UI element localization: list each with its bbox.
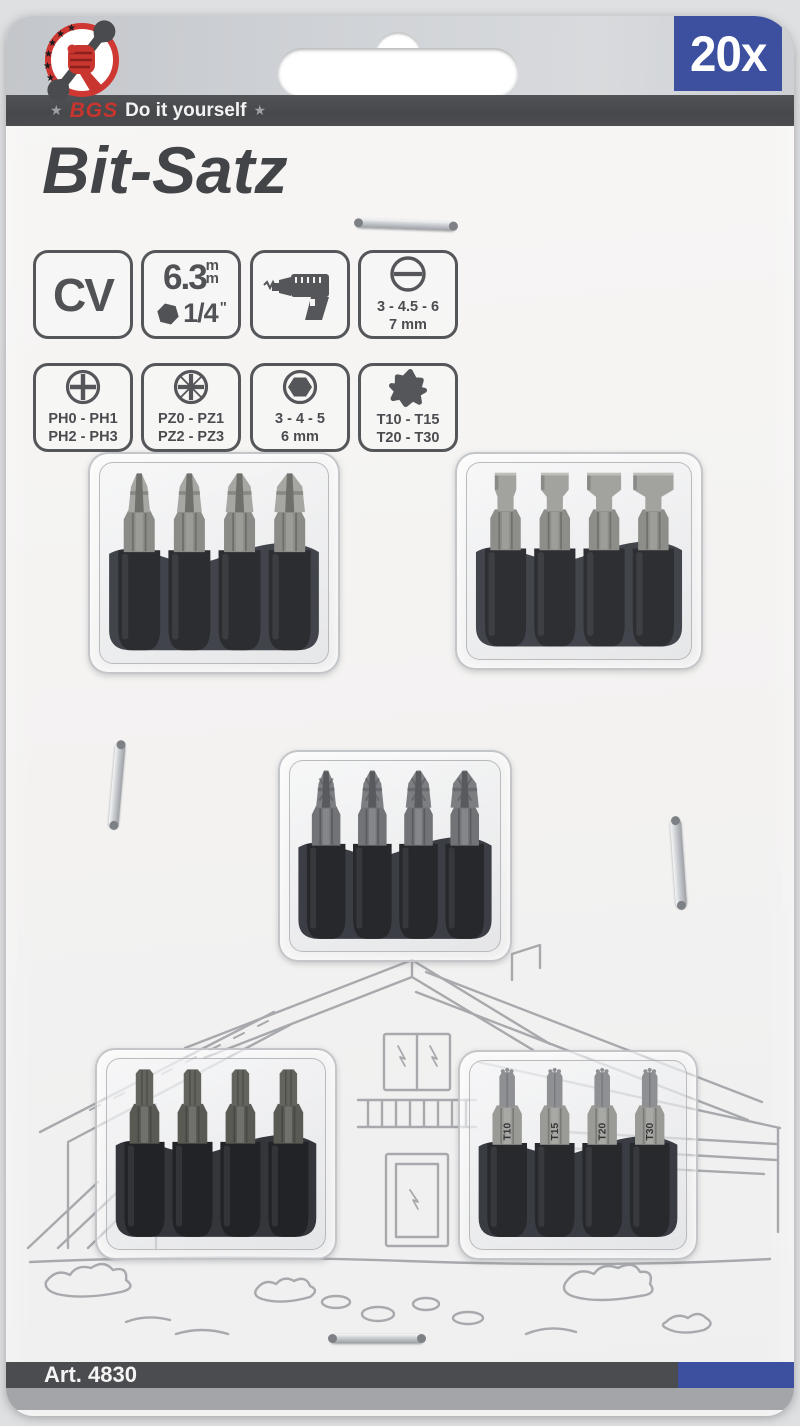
blister-tray [466,462,692,660]
spec-phillips-box: PH0 - PH1 PH2 - PH3 [33,363,133,452]
blister-card: 20x ★ BGS Do it yourself ★ ★★★ ★★★★ [6,16,794,1416]
torx-bit-icon [387,368,429,408]
svg-text:T30: T30 [645,1123,656,1141]
mm-unit: m [206,273,219,286]
hang-slot [278,48,518,96]
drill-icon [263,268,337,322]
slotted-sizes-1: 3 - 4.5 - 6 [377,299,439,316]
torx-sizes-2: T20 - T30 [377,430,440,447]
footer-blue-segment [678,1362,794,1388]
hex-bit-icon [278,369,322,407]
blister-hex [95,1048,337,1260]
spec-pozidriv-box: PZ0 - PZ1 PZ2 - PZ3 [141,363,241,452]
svg-text:★: ★ [43,61,52,72]
blister-torx: T10T15T20T30 [458,1050,698,1260]
spec-cv-box: CV [33,250,133,339]
torx-sizes-1: T10 - T15 [377,412,440,429]
hex-sizes-1: 3 - 4 - 5 [275,411,325,428]
phillips-sizes-1: PH0 - PH1 [48,411,117,428]
article-number: Art. 4830 [44,1362,137,1388]
count-badge: 20x [674,16,782,91]
pozidriv-bit-icon [170,369,212,407]
svg-text:T10: T10 [503,1123,514,1141]
blister-tray: T10T15T20T30 [469,1060,687,1250]
slotted-sizes-2: 7 mm [377,317,439,334]
staple-left [108,742,125,829]
svg-text:★: ★ [56,29,65,40]
cv-label: CV [53,268,113,322]
product-title: Bit-Satz [42,132,288,208]
count-badge-label: 20x [690,25,766,83]
star-icon: ★ [253,102,266,119]
blister-tray [106,1058,326,1250]
blister-tray [289,760,501,952]
drive-size-mm: 6.3 [163,260,206,295]
spec-hex-box: 3 - 4 - 5 6 mm [250,363,350,452]
hex-sizes-2: 6 mm [275,429,325,446]
spec-machine-use-box [250,250,350,339]
hang-slot-pill [278,48,518,96]
staple-bottom [330,1334,424,1343]
staple-right [670,818,687,909]
svg-text:T20: T20 [598,1123,609,1141]
blister-pozidriv [278,750,512,962]
spec-drive-size-box: 6.3 mm 1/4 " [141,250,241,339]
blister-slotted [455,452,703,670]
torx-bits-image: T10T15T20T30 [470,1061,686,1249]
drive-size-inch: 1/4 [183,298,218,329]
staple-top [356,218,456,230]
svg-text:T15: T15 [550,1123,561,1141]
spec-torx-box: T10 - T15 T20 - T30 [358,363,458,452]
blister-tray [99,462,329,664]
phillips-bit-icon [62,369,104,407]
slotted-bits-image [467,463,691,659]
svg-text:★: ★ [67,23,76,34]
svg-text:★: ★ [44,49,53,60]
pozidriv-bits-image [290,761,500,951]
packaging-photo: 20x ★ BGS Do it yourself ★ ★★★ ★★★★ [0,0,800,1426]
brand-tagline: Do it yourself [125,100,246,122]
phillips-bits-image [100,463,328,663]
blister-phillips [88,452,340,674]
inch-mark: " [220,299,227,316]
pozidriv-sizes-1: PZ0 - PZ1 [158,411,224,428]
spec-slotted-box: 3 - 4.5 - 6 7 mm [358,250,458,339]
hex-shank-icon [155,302,181,326]
hex-bits-image [107,1059,325,1249]
bgs-wrench-fist-logo: ★★★ ★★★★ [34,16,130,128]
phillips-sizes-2: PH2 - PH3 [48,429,117,446]
footer-stripe: Art. 4830 [6,1362,794,1388]
slotted-bit-icon [387,255,429,295]
footer-light-stripe [6,1388,794,1410]
pozidriv-sizes-2: PZ2 - PZ3 [158,429,224,446]
